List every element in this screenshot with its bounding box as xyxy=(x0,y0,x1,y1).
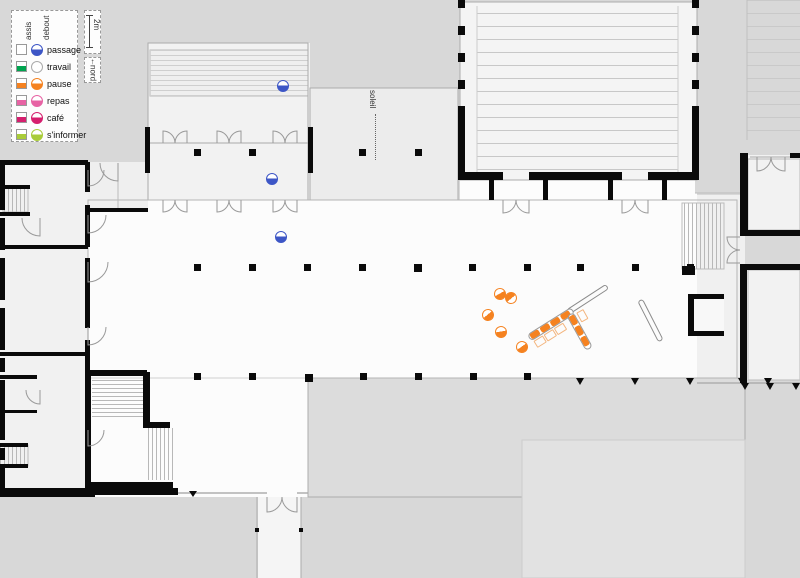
right-wing xyxy=(745,155,800,235)
legend-label: passage xyxy=(47,45,81,55)
sun-annotation: soleil xyxy=(368,90,377,113)
legend-item: travail xyxy=(16,58,75,75)
floor-plan xyxy=(0,0,800,578)
legend-label: café xyxy=(47,113,64,123)
legend-rows: passagetravailpauserepascafés'informer xyxy=(16,41,75,143)
legend-col-assis: assis xyxy=(25,14,33,40)
legend-item: s'informer xyxy=(16,126,75,143)
legend-assis-icon xyxy=(16,95,27,106)
floor-plan-page: assis debout passagetravailpauserepascaf… xyxy=(0,0,800,578)
legend-assis-icon xyxy=(16,112,27,123)
scale-line xyxy=(89,15,90,48)
north-label: nord xyxy=(89,65,97,81)
scale-cap-top xyxy=(86,15,93,16)
legend-label: travail xyxy=(47,62,71,72)
main-hall xyxy=(88,200,737,378)
north-indicator: ↑ nord xyxy=(84,57,101,83)
sun-label: soleil xyxy=(368,90,377,108)
legend-label: pause xyxy=(47,79,72,89)
legend-item: pause xyxy=(16,75,75,92)
scale-label: 2m xyxy=(92,19,101,30)
stair-left-upper xyxy=(3,188,28,212)
stair-main-upper xyxy=(92,378,143,418)
entrance-vestibule xyxy=(258,497,301,578)
legend-debout-icon xyxy=(31,129,43,141)
legend: assis debout passagetravailpauserepascaf… xyxy=(11,10,78,142)
legend-assis-icon xyxy=(16,44,27,55)
legend-item: café xyxy=(16,109,75,126)
legend-item: passage xyxy=(16,41,75,58)
legend-assis-icon xyxy=(16,78,27,89)
scale-cap-bottom xyxy=(86,47,93,48)
scale-bar: 2m xyxy=(84,10,101,54)
legend-debout-icon xyxy=(31,78,43,90)
legend-debout-icon xyxy=(31,44,43,56)
courtyard-terrace xyxy=(522,440,745,578)
stair-main-lower xyxy=(147,428,175,480)
auditorium-rows xyxy=(477,6,678,172)
legend-debout-icon xyxy=(31,61,43,73)
legend-debout-icon xyxy=(31,112,43,124)
stair-right xyxy=(682,203,724,269)
legend-col-debout: debout xyxy=(43,14,51,40)
legend-assis-icon xyxy=(16,129,27,140)
legend-item: repas xyxy=(16,92,75,109)
legend-label: repas xyxy=(47,96,70,106)
legend-debout-icon xyxy=(31,95,43,107)
sun-direction-line xyxy=(375,114,376,160)
legend-label: s'informer xyxy=(47,130,86,140)
legend-assis-icon xyxy=(16,61,27,72)
